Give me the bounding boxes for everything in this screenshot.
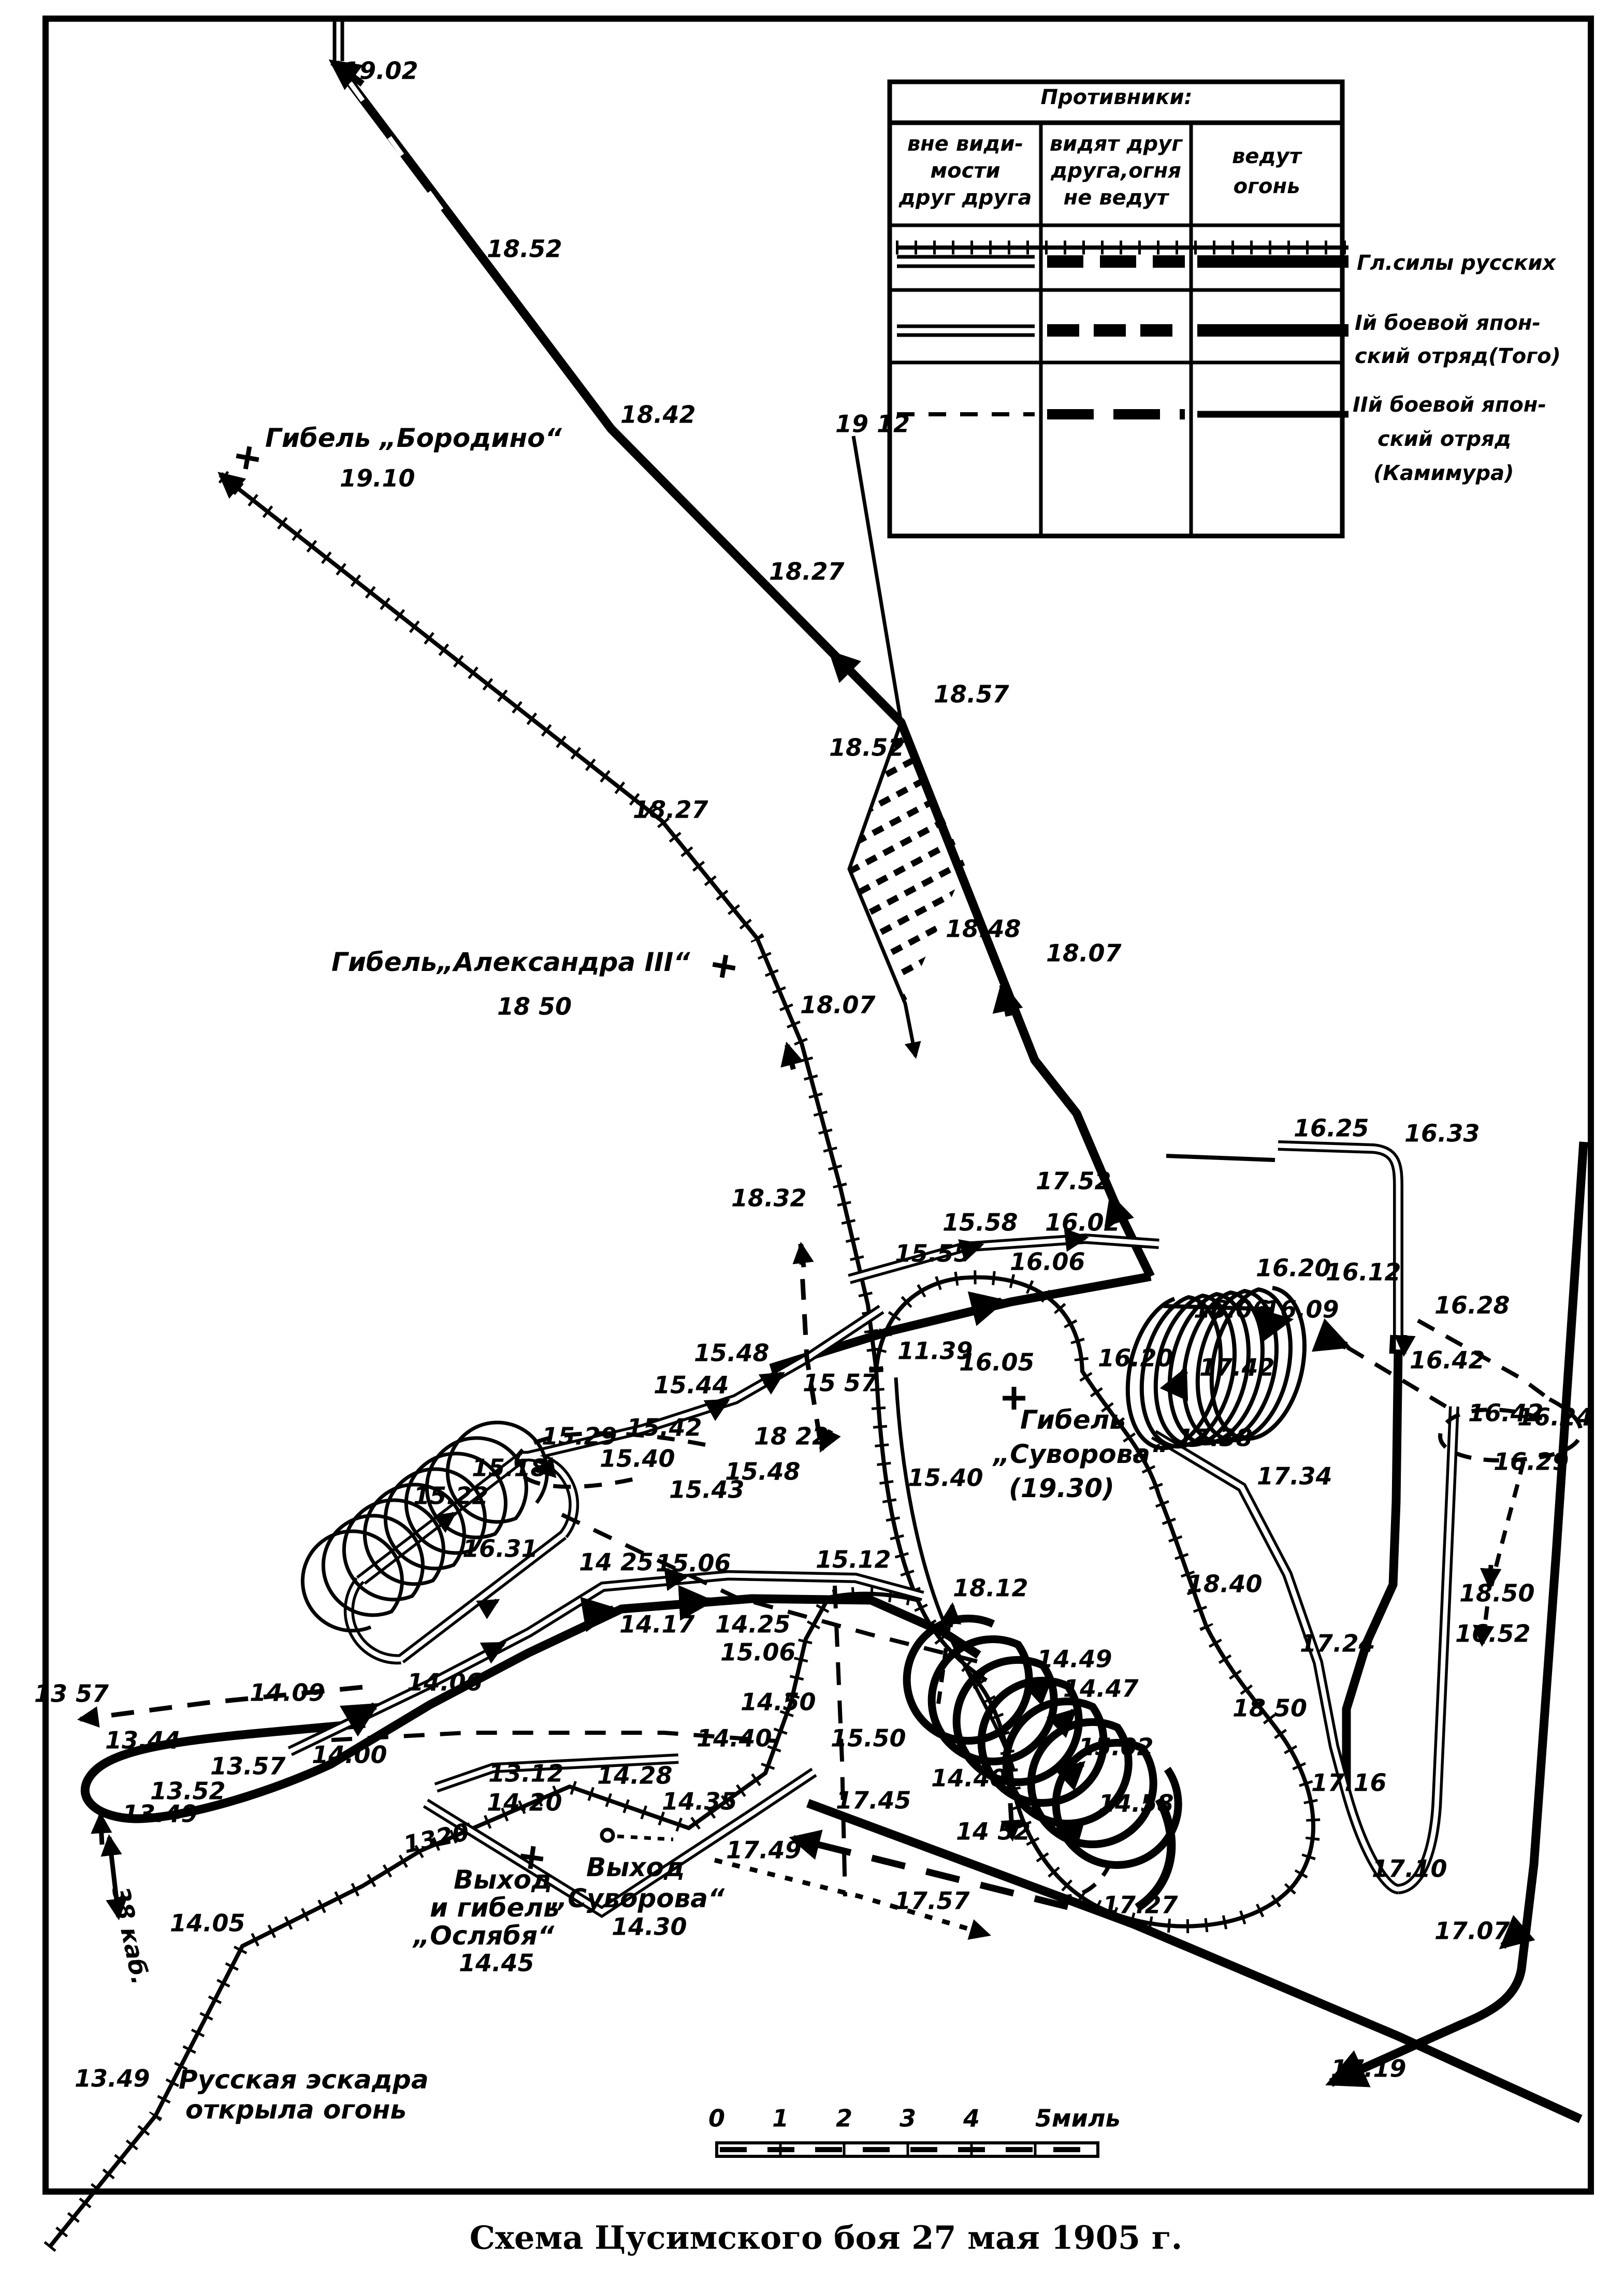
time-label: 15.48 (694, 1339, 770, 1367)
cross-alexander (711, 953, 737, 980)
time-label: 18.52 (487, 235, 562, 263)
track-1727 (808, 1803, 1581, 2119)
time-label: 13.57 (210, 1752, 286, 1780)
togo-track-1642-south (1346, 1350, 1398, 1793)
scale-tick: 0 (708, 2104, 725, 2132)
legend-togo: ский отряд(Того) (1355, 344, 1561, 368)
time-label: 15.55 (895, 1239, 970, 1267)
time-label: 18.32 (731, 1184, 807, 1212)
scale-tick: 4 (963, 2104, 980, 2132)
time-label: 14.25 (715, 1610, 791, 1638)
legend-kamimura: ский отряд (1378, 427, 1511, 451)
time-label: 18 22 (754, 1422, 829, 1450)
time-label: 14.06 (407, 1668, 483, 1696)
time-label: 17.27 (1103, 1891, 1178, 1919)
arrow-1612 (1329, 1339, 1346, 1346)
time-label: 15.06 (656, 1549, 731, 1577)
circle-suvorov-exit (602, 1830, 613, 1841)
scale-bar (717, 2143, 1098, 2156)
time-label: 15.43 (669, 1475, 745, 1503)
time-label: 16.20 (1256, 1254, 1331, 1282)
time-label: 13.49 (75, 2064, 150, 2092)
time-label: 16.31 (462, 1534, 538, 1562)
time-label: 15.06 (720, 1638, 796, 1666)
legend-col3: огонь (1234, 175, 1300, 198)
loss-suvorov: Гибель (1020, 1405, 1126, 1435)
time-label: 17.57 (894, 1887, 970, 1915)
legend-samples (896, 248, 1349, 414)
time-label: 15.12 (816, 1545, 891, 1573)
scale-tick: 2 (836, 2104, 852, 2132)
time-label: 14.17 (619, 1610, 695, 1638)
time-label: 17.07 (1434, 1917, 1510, 1945)
loss-suvorov: „Суворова“ (992, 1439, 1167, 1469)
loss-oslyabya: Выход (454, 1865, 552, 1895)
legend-col1: друг друга (898, 186, 1032, 210)
time-label: 18.52 (829, 733, 905, 761)
time-label: 19.02 (343, 56, 418, 84)
time-label: 17.24 (1300, 1629, 1375, 1657)
time-label: 16.02 (1045, 1208, 1121, 1236)
note-fire-opened: открыла огонь (185, 2095, 407, 2125)
russian-track-north (223, 476, 876, 1370)
note-distance: 38 каб. (107, 1884, 155, 1987)
hatched-engagement-zone (849, 725, 965, 1004)
scale-tick: 5миль (1035, 2104, 1121, 2132)
time-label: 17.10 (1372, 1854, 1447, 1882)
legend-col2: видят друг (1050, 132, 1183, 156)
time-label: 16.29 (1494, 1447, 1569, 1475)
legend-togo: Iй боевой япон- (1355, 311, 1541, 335)
russian-track-north (223, 476, 876, 1370)
time-label: 14.28 (597, 1761, 673, 1789)
arrow-1807-rus (787, 1045, 793, 1069)
legend-kamimura: IIй боевой япон- (1353, 393, 1546, 417)
time-label: 15.40 (908, 1463, 983, 1491)
time-label: 18.42 (620, 400, 696, 428)
time-label: 18.12 (953, 1574, 1028, 1602)
top-hang-line (335, 19, 342, 61)
time-label: 18.48 (946, 915, 1021, 942)
note-suvorov-exit: „Суворова“ (550, 1883, 725, 1913)
time-label: 17.42 (1199, 1353, 1275, 1381)
loss-oslyabya: и гибель (430, 1893, 560, 1923)
time-label: 19 12 (835, 410, 910, 438)
time-label: 17.45 (836, 1786, 911, 1814)
time-label: 16.06 (1010, 1248, 1085, 1275)
arrow-1606 (983, 1301, 1002, 1306)
time-label: 13 57 (34, 1679, 109, 1707)
time-label: 14 52 (956, 1817, 1031, 1845)
time-label: 18.07 (1046, 939, 1122, 967)
time-label: 16.42 (1410, 1346, 1485, 1374)
event-markers (235, 445, 1025, 1870)
time-label: 16.52 (1455, 1619, 1531, 1647)
time-label: 15 57 (803, 1369, 877, 1397)
time-label: 16.12 (1326, 1258, 1401, 1286)
loss-suvorov: (19.30) (1009, 1473, 1114, 1503)
time-label: 15.50 (831, 1724, 906, 1752)
time-label: 14.40 (697, 1724, 772, 1752)
time-label: 14.09 (250, 1678, 325, 1706)
time-label: 15.18 (472, 1454, 547, 1482)
tsushima-battle-map: Схема Цусимского боя 27 мая 1905 г. Прот… (0, 0, 1624, 2277)
time-label: 17.19 (1331, 2054, 1407, 2082)
time-label: 14.20 (487, 1788, 562, 1816)
dashed-1850-descent (1482, 1461, 1524, 1647)
coil-northeast-edges (1164, 1156, 1275, 1309)
time-label: 17.38 (1177, 1424, 1253, 1452)
time-label: 17.52 (1036, 1167, 1111, 1195)
time-label: 14.40 (931, 1764, 1007, 1792)
legend-title: Противники: (1041, 85, 1193, 109)
time-label: 14.35 (662, 1787, 737, 1815)
scale-tick: 1 (772, 2104, 789, 2132)
time-label: 15.02 (1078, 1733, 1154, 1761)
time-label: 16.24 (1517, 1403, 1593, 1431)
legend-col2: друга,огня (1050, 159, 1181, 183)
time-label: 18 50 (1232, 1694, 1307, 1722)
legend-russians: Гл.силы русских (1357, 251, 1556, 275)
arrow-1812 (950, 1605, 952, 1627)
time-label: 15.44 (654, 1371, 729, 1399)
time-label: 16.05 (959, 1348, 1035, 1376)
time-label: 18 50 (497, 992, 572, 1020)
arrow-1349 (100, 1815, 102, 1845)
time-label: 14.49 (1037, 1645, 1112, 1673)
legend-kamimura: (Камимура) (1373, 461, 1514, 485)
time-label: 16.33 (1404, 1119, 1480, 1147)
time-label: 14 25 (579, 1548, 654, 1576)
arrow-1602 (1068, 1238, 1085, 1240)
time-label: 18.40 (1187, 1570, 1263, 1598)
time-label: 14.58 (1098, 1789, 1174, 1817)
legend-col2: не ведут (1064, 186, 1170, 210)
legend-col1: вне види- (907, 132, 1023, 156)
time-label: 15.22 (413, 1482, 489, 1510)
time-label: 1320 (401, 1818, 471, 1859)
cross-borodino (235, 445, 261, 471)
legend-col1: мости (930, 159, 1000, 183)
track-1710-return-core (1398, 1406, 1454, 1889)
time-label: 16.20 (1098, 1344, 1173, 1372)
dashed-suvorov-exit-tail (617, 1836, 673, 1839)
time-label: 16.25 (1294, 1114, 1369, 1142)
loss-oslyabya: „Ослябя“ (412, 1921, 555, 1951)
arrow-1631 (483, 1601, 497, 1609)
togo-tracks (85, 63, 1584, 2119)
time-label: 14.50 (741, 1688, 816, 1716)
loss-borodino: Гибель „Бородино“ (265, 423, 562, 453)
arrow-1425 (690, 1601, 709, 1602)
arrow-1832 (801, 1245, 804, 1267)
legend-sample-russian-col1 (897, 257, 1035, 266)
time-label: 16.28 (1434, 1291, 1510, 1319)
time-label: 14.00 (312, 1741, 387, 1768)
time-label: 18.50 (1459, 1579, 1535, 1607)
time-label: 17.16 (1311, 1768, 1387, 1796)
time-label: 16.09 (1264, 1295, 1339, 1323)
time-label: 16.06 (1194, 1295, 1269, 1323)
loss-alexander: Гибель„Александра III“ (331, 947, 690, 977)
time-label: 13.44 (105, 1726, 181, 1754)
caption: Схема Цусимского боя 27 мая 1905 г. (470, 2218, 1182, 2256)
time-label: 18.07 (800, 991, 876, 1019)
time-label: 13.49 (122, 1800, 198, 1828)
note-suvorov-exit: 14.30 (612, 1912, 687, 1940)
time-label: 14.05 (170, 1909, 245, 1937)
loss-oslyabya: 14.45 (459, 1949, 534, 1977)
note-suvorov-exit: Выход (586, 1852, 685, 1882)
time-label: 17.34 (1257, 1462, 1332, 1490)
time-label: 15.40 (600, 1444, 675, 1472)
time-label: 18.27 (769, 557, 845, 585)
time-label: 15.58 (943, 1208, 1018, 1236)
scale-tick: 3 (900, 2104, 916, 2132)
time-label: 18.57 (934, 680, 1009, 708)
time-label: 14.47 (1063, 1674, 1139, 1702)
note-fire-opened: Русская эскадра (179, 2065, 429, 2095)
time-label: 15.42 (627, 1413, 702, 1441)
time-label: 13.12 (488, 1759, 564, 1787)
arrow-1417 (594, 1609, 613, 1613)
legend-sample-togo-col1 (897, 326, 1035, 335)
time-label: 19.10 (340, 464, 415, 492)
time-label: 18.27 (633, 795, 708, 823)
legend-col3: ведут (1232, 144, 1303, 168)
time-label: 17.49 (726, 1836, 802, 1864)
